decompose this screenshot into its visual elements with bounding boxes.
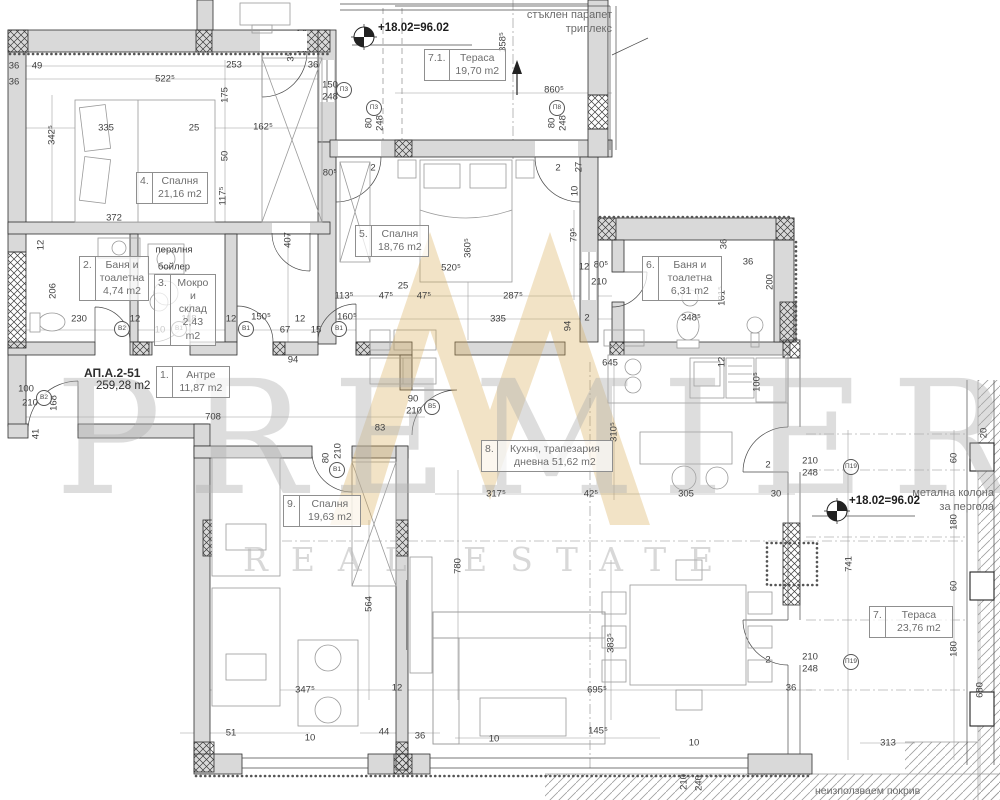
floor-plan-canvas: PREMIER REAL ESTATE 364936522⁵253363⁵175…: [0, 0, 1000, 800]
roof-hatch-areas: [545, 380, 1000, 800]
north-arrow: [512, 60, 522, 95]
floor-plan-drawing: [0, 0, 1000, 800]
